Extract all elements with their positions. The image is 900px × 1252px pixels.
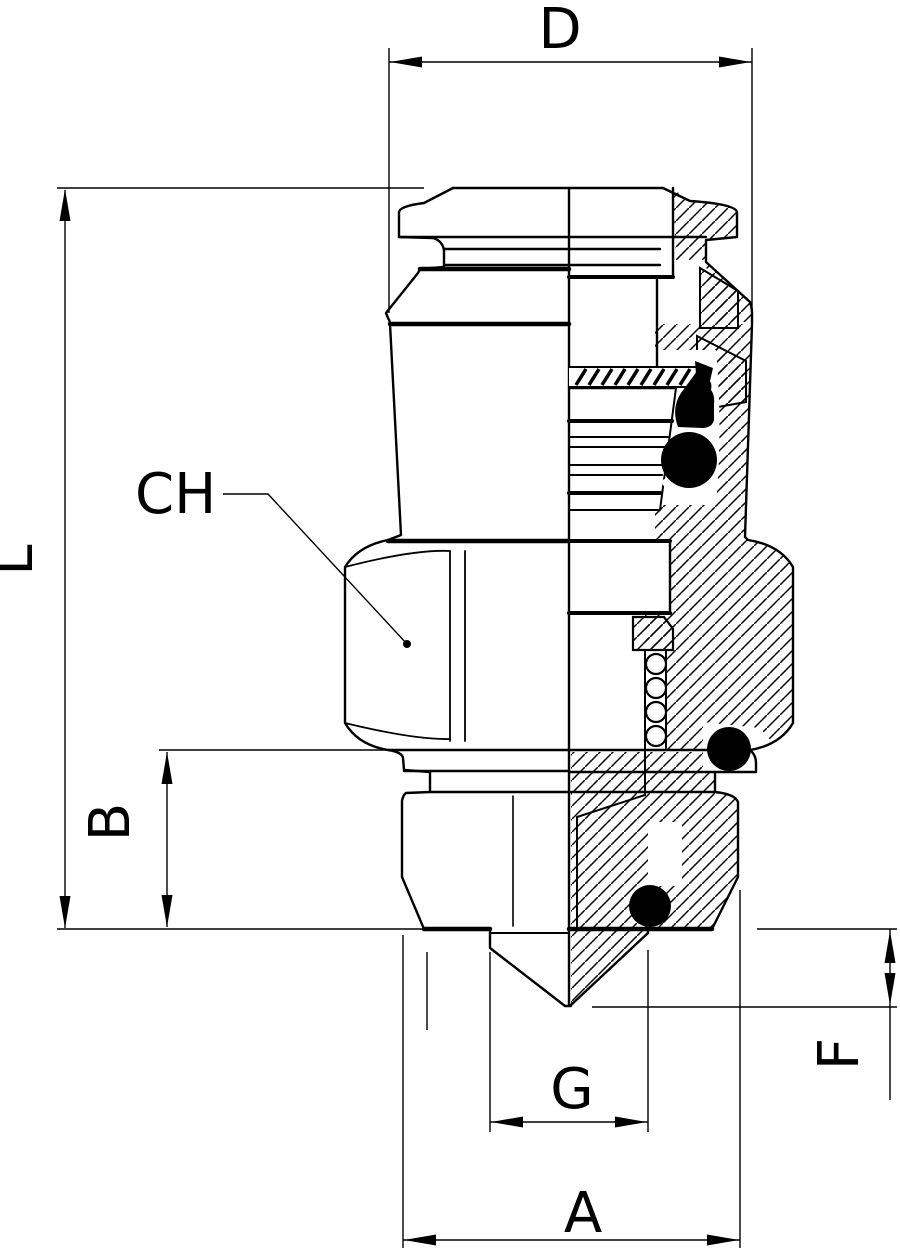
ch-leader-dot <box>403 640 411 648</box>
dim-label-a: A <box>564 1181 602 1246</box>
oring-groove-bottom <box>648 822 682 886</box>
oring-mid <box>707 727 751 771</box>
dim-label-f: F <box>807 1038 872 1070</box>
oring-bottom <box>629 885 671 927</box>
dim-label-b: B <box>78 803 143 841</box>
dim-label-l: L <box>0 544 46 575</box>
dim-label-ch: CH <box>135 462 216 527</box>
fitting-section-drawing: D L B CH G A F <box>0 0 900 1252</box>
guide-block-section <box>633 617 673 650</box>
dim-label-g: G <box>550 1057 593 1122</box>
dim-label-d: D <box>538 0 581 62</box>
technical-drawing-page: D L B CH G A F <box>0 0 900 1252</box>
oring-upper <box>661 432 717 488</box>
